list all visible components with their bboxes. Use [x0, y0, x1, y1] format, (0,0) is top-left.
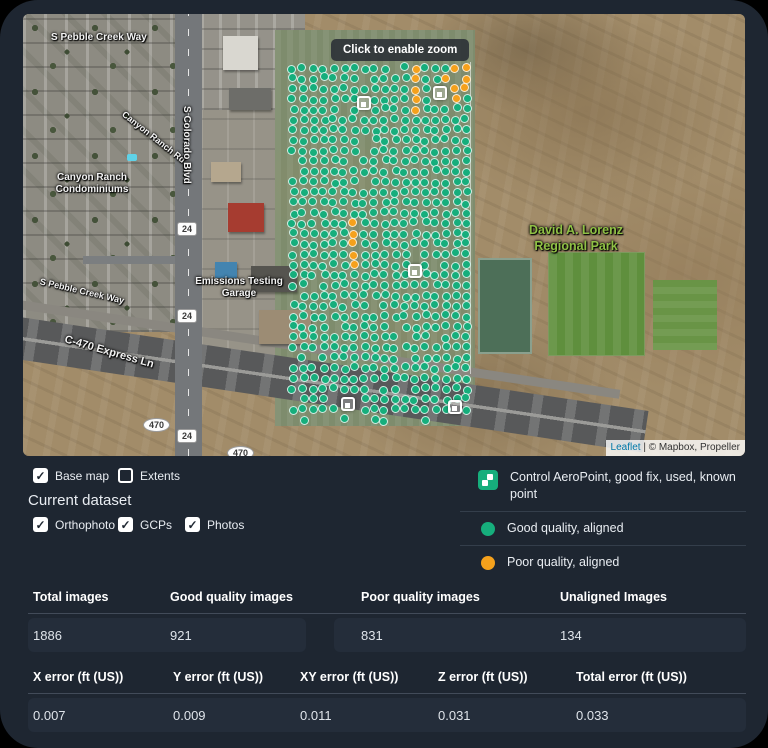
- good-photo-marker: [361, 352, 370, 361]
- good-photo-marker: [361, 251, 370, 260]
- good-photo-marker: [287, 219, 296, 228]
- good-photo-marker: [288, 177, 297, 186]
- good-photo-marker: [379, 145, 388, 154]
- good-photo-marker: [331, 281, 340, 290]
- good-photo-marker: [420, 405, 429, 414]
- good-photo-marker: [371, 106, 380, 115]
- good-photo-marker: [340, 146, 349, 155]
- good-photo-marker: [349, 333, 358, 342]
- good-photo-marker: [390, 230, 399, 239]
- good-photo-marker: [360, 385, 369, 394]
- good-photo-marker: [351, 147, 360, 156]
- good-photo-marker: [451, 271, 460, 280]
- good-photo-marker: [350, 311, 359, 320]
- good-photo-marker: [320, 333, 329, 342]
- good-photo-marker: [402, 250, 411, 259]
- good-photo-marker: [298, 147, 307, 156]
- good-photo-marker: [409, 396, 418, 405]
- good-photo-marker: [462, 125, 471, 134]
- good-photo-marker: [390, 300, 399, 309]
- good-photo-marker: [370, 219, 379, 228]
- good-photo-marker: [402, 293, 411, 302]
- column-header: XY error (ft (US)): [295, 670, 433, 684]
- good-photo-marker: [410, 375, 419, 384]
- good-photo-marker: [310, 373, 319, 382]
- good-photo-marker: [461, 393, 470, 402]
- good-photo-marker: [330, 333, 339, 342]
- good-photo-marker: [462, 269, 471, 278]
- good-photo-marker: [431, 312, 440, 321]
- good-photo-marker: [319, 85, 328, 94]
- good-photo-marker: [289, 136, 298, 145]
- good-photo-marker: [402, 146, 411, 155]
- good-photo-marker: [432, 405, 441, 414]
- good-photo-marker: [360, 168, 369, 177]
- good-photo-marker: [462, 353, 471, 362]
- map-attribution: Leaflet | © Mapbox, Propeller: [606, 440, 745, 456]
- good-photo-marker: [460, 114, 469, 123]
- good-photo-marker: [441, 188, 450, 197]
- good-photo-marker: [361, 364, 370, 373]
- good-photo-marker: [339, 250, 348, 259]
- legend-item-good: Good quality, aligned: [460, 512, 746, 546]
- orthophoto-checkbox[interactable]: ✓: [33, 517, 48, 532]
- good-photo-marker: [329, 145, 338, 154]
- stat-value: 921: [165, 628, 356, 643]
- good-photo-marker: [452, 342, 461, 351]
- good-photo-marker: [287, 146, 296, 155]
- good-photo-marker: [339, 178, 348, 187]
- good-photo-marker: [360, 301, 369, 310]
- good-photo-marker: [371, 177, 380, 186]
- good-photo-marker: [410, 344, 419, 353]
- good-photo-marker: [289, 270, 298, 279]
- good-photo-marker: [340, 135, 349, 144]
- good-photo-marker: [442, 342, 451, 351]
- good-photo-marker: [410, 198, 419, 207]
- good-photo-marker: [320, 156, 329, 165]
- good-photo-marker: [298, 197, 307, 206]
- good-photo-marker: [341, 94, 350, 103]
- good-photo-marker: [321, 219, 330, 228]
- good-photo-marker: [288, 282, 297, 291]
- photos-label: Photos: [207, 518, 244, 532]
- good-photo-marker: [339, 209, 348, 218]
- good-photo-marker: [451, 167, 460, 176]
- good-photo-marker: [287, 385, 296, 394]
- good-photo-marker: [431, 383, 440, 392]
- good-photo-marker: [451, 158, 460, 167]
- good-photo-marker: [441, 147, 450, 156]
- good-photo-marker: [300, 229, 309, 238]
- poor-photo-marker: [349, 251, 358, 260]
- good-photo-marker: [298, 302, 307, 311]
- good-photo-marker: [400, 187, 409, 196]
- good-photo-marker: [329, 229, 338, 238]
- good-photo-marker: [463, 322, 472, 331]
- good-photo-marker: [462, 292, 471, 301]
- good-photo-marker: [420, 250, 429, 259]
- good-photo-marker: [361, 239, 370, 248]
- good-photo-marker: [358, 199, 367, 208]
- good-photo-marker: [361, 272, 370, 281]
- good-photo-marker: [329, 383, 338, 392]
- good-photo-marker: [300, 250, 309, 259]
- good-photo-marker: [338, 303, 347, 312]
- good-photo-marker: [442, 301, 451, 310]
- good-photo-marker: [453, 322, 462, 331]
- good-photo-marker: [300, 167, 309, 176]
- good-photo-marker: [392, 250, 401, 259]
- good-photo-marker: [369, 64, 378, 73]
- good-photo-marker: [341, 365, 350, 374]
- good-photo-marker: [318, 353, 327, 362]
- good-photo-marker: [420, 137, 429, 146]
- good-photo-marker: [339, 197, 348, 206]
- good-photo-marker: [461, 200, 470, 209]
- checkmark-icon: ✓: [187, 519, 197, 531]
- good-photo-marker: [422, 198, 431, 207]
- good-photo-marker: [321, 375, 330, 384]
- good-photo-marker: [349, 343, 358, 352]
- good-photo-marker: [370, 333, 379, 342]
- map-canvas[interactable]: S Pebble Creek Way Canyon Ranch Rd Canyo…: [23, 14, 745, 456]
- good-photo-marker: [441, 280, 450, 289]
- image-stats-header: Total images Good quality images Poor qu…: [28, 590, 746, 614]
- good-photo-marker: [309, 405, 318, 414]
- poor-photo-marker: [412, 95, 421, 104]
- good-photo-marker: [461, 363, 470, 372]
- good-photo-marker: [370, 96, 379, 105]
- photos-checkbox[interactable]: ✓: [185, 517, 200, 532]
- good-photo-marker: [430, 126, 439, 135]
- good-photo-marker: [389, 344, 398, 353]
- good-photo-marker: [389, 207, 398, 216]
- good-photo-marker: [453, 218, 462, 227]
- good-photo-marker: [391, 262, 400, 271]
- good-photo-marker: [309, 302, 318, 311]
- good-photo-marker: [430, 300, 439, 309]
- good-photo-marker: [400, 85, 409, 94]
- good-photo-marker: [463, 146, 472, 155]
- good-photo-marker: [328, 114, 337, 123]
- good-photo-marker: [339, 352, 348, 361]
- good-photo-marker: [289, 116, 298, 125]
- good-photo-marker: [350, 63, 359, 72]
- good-photo-marker: [421, 383, 430, 392]
- good-photo-marker: [299, 331, 308, 340]
- good-photo-marker: [359, 189, 368, 198]
- good-photo-marker: [411, 363, 420, 372]
- good-photo-marker: [462, 313, 471, 322]
- good-photo-marker: [289, 406, 298, 415]
- good-photo-marker: [361, 126, 370, 135]
- good-photo-marker: [453, 374, 462, 383]
- good-photo-marker: [350, 176, 359, 185]
- poor-photo-marker: [462, 63, 471, 72]
- good-photo-marker: [420, 63, 429, 72]
- good-photo-marker: [370, 404, 379, 413]
- good-photo-marker: [369, 188, 378, 197]
- good-photo-marker: [348, 188, 357, 197]
- good-photo-marker: [309, 106, 318, 115]
- good-photo-marker: [412, 332, 421, 341]
- good-photo-marker: [297, 208, 306, 217]
- good-photo-marker: [307, 363, 316, 372]
- good-photo-marker: [349, 375, 358, 384]
- good-photo-marker: [330, 374, 339, 383]
- good-photo-marker: [289, 364, 298, 373]
- good-photo-marker: [288, 251, 297, 260]
- good-photo-marker: [402, 135, 411, 144]
- good-photo-marker: [401, 157, 410, 166]
- good-photo-marker: [380, 260, 389, 269]
- good-photo-marker: [462, 406, 471, 415]
- good-photo-marker: [330, 352, 339, 361]
- good-photo-marker: [452, 291, 461, 300]
- good-photo-marker: [340, 73, 349, 82]
- good-photo-marker: [433, 280, 442, 289]
- good-photo-marker: [399, 311, 408, 320]
- good-photo-marker: [329, 124, 338, 133]
- good-photo-marker: [420, 342, 429, 351]
- good-photo-marker: [430, 105, 439, 114]
- good-photo-marker: [400, 125, 409, 134]
- extents-checkbox[interactable]: [118, 468, 133, 483]
- good-photo-marker: [298, 156, 307, 165]
- good-photo-marker: [340, 228, 349, 237]
- image-stats-table: Total images Good quality images Poor qu…: [28, 590, 746, 652]
- good-photo-marker: [440, 270, 449, 279]
- stat-value: 0.009: [168, 708, 295, 723]
- good-photo-marker: [370, 75, 379, 84]
- good-photo-marker: [361, 260, 370, 269]
- good-photo-marker: [462, 301, 471, 310]
- good-photo-marker: [453, 124, 462, 133]
- good-photo-marker: [360, 85, 369, 94]
- good-photo-marker: [410, 238, 419, 247]
- good-photo-marker: [461, 177, 470, 186]
- good-photo-marker: [451, 208, 460, 217]
- good-photo-marker: [299, 279, 308, 288]
- good-photo-marker: [369, 280, 378, 289]
- good-photo-marker: [380, 207, 389, 216]
- good-photo-marker: [451, 248, 460, 257]
- good-photo-marker: [461, 249, 470, 258]
- good-photo-marker: [309, 177, 318, 186]
- good-photo-marker: [289, 332, 298, 341]
- good-photo-marker: [309, 385, 318, 394]
- good-photo-marker: [329, 250, 338, 259]
- good-photo-marker: [443, 364, 452, 373]
- good-photo-marker: [380, 281, 389, 290]
- good-photo-marker: [411, 187, 420, 196]
- good-photo-marker: [309, 96, 318, 105]
- column-header: X error (ft (US)): [28, 670, 168, 684]
- good-photo-marker: [412, 312, 421, 321]
- good-photo-marker: [349, 323, 358, 332]
- good-photo-marker: [320, 167, 329, 176]
- good-photo-marker: [309, 394, 318, 403]
- poor-photo-marker: [411, 86, 420, 95]
- good-photo-marker: [372, 291, 381, 300]
- good-photo-marker: [340, 375, 349, 384]
- good-photo-marker: [299, 137, 308, 146]
- good-photo-marker: [300, 260, 309, 269]
- good-photo-marker: [330, 342, 339, 351]
- good-photo-marker: [391, 404, 400, 413]
- good-photo-marker: [299, 94, 308, 103]
- good-photo-marker: [299, 84, 308, 93]
- good-photo-marker: [441, 219, 450, 228]
- good-photo-marker: [451, 362, 460, 371]
- leaflet-link[interactable]: Leaflet: [611, 442, 641, 453]
- good-photo-marker: [442, 210, 451, 219]
- orthophoto-label: Orthophoto: [55, 518, 115, 532]
- good-photo-marker: [452, 146, 461, 155]
- good-photo-marker: [411, 178, 420, 187]
- good-photo-marker: [369, 323, 378, 332]
- extents-label: Extents: [140, 469, 180, 483]
- stat-value: 0.033: [571, 708, 746, 723]
- image-stats-values: 1886 921 831 134: [28, 618, 746, 652]
- good-photo-marker: [392, 271, 401, 280]
- good-photo-marker: [411, 145, 420, 154]
- aeropoint-marker: [408, 264, 422, 278]
- aeropoint-marker: [357, 96, 371, 110]
- good-photo-marker: [431, 135, 440, 144]
- good-photo-marker: [370, 394, 379, 403]
- good-photo-marker: [432, 250, 441, 259]
- good-photo-marker: [369, 166, 378, 175]
- good-photo-marker: [379, 417, 388, 426]
- good-photo-marker: [452, 302, 461, 311]
- good-photo-marker: [442, 385, 451, 394]
- stat-value: 0.011: [295, 708, 433, 723]
- good-photo-marker: [359, 374, 368, 383]
- stat-value: 0.007: [28, 708, 168, 723]
- good-photo-marker: [341, 261, 350, 270]
- qa-report-panel: S Pebble Creek Way Canyon Ranch Rd Canyo…: [0, 0, 768, 748]
- good-photo-marker: [461, 137, 470, 146]
- good-photo-marker: [350, 86, 359, 95]
- good-photo-marker: [297, 220, 306, 229]
- current-dataset-title: Current dataset: [28, 492, 131, 509]
- good-photo-marker: [339, 157, 348, 166]
- good-photo-marker: [390, 84, 399, 93]
- good-photo-marker: [390, 364, 399, 373]
- good-photo-marker: [360, 116, 369, 125]
- good-photo-marker: [338, 168, 347, 177]
- good-photo-marker: [462, 168, 471, 177]
- good-photo-marker: [441, 310, 450, 319]
- good-photo-marker: [369, 313, 378, 322]
- good-photo-marker: [340, 279, 349, 288]
- good-photo-marker: [380, 311, 389, 320]
- good-photo-marker: [452, 281, 461, 290]
- good-photo-marker: [420, 146, 429, 155]
- gcps-checkbox[interactable]: ✓: [118, 517, 133, 532]
- good-photo-marker: [300, 292, 309, 301]
- good-photo-marker: [462, 281, 471, 290]
- good-photo-marker: [300, 394, 309, 403]
- aeropoint-marker: [433, 86, 447, 100]
- good-photo-marker: [307, 219, 316, 228]
- good-photo-marker: [341, 64, 350, 73]
- good-photo-marker: [310, 229, 319, 238]
- good-photo-marker: [379, 386, 388, 395]
- column-header: Unaligned Images: [555, 590, 746, 604]
- good-photo-marker: [308, 343, 317, 352]
- aeropoint-marker: [341, 397, 355, 411]
- good-photo-marker: [371, 84, 380, 93]
- good-photo-marker: [299, 311, 308, 320]
- column-header: Z error (ft (US)): [433, 670, 571, 684]
- good-photo-marker: [442, 375, 451, 384]
- good-photo-marker: [380, 322, 389, 331]
- poor-photo-marker: [411, 74, 420, 83]
- good-photo-marker: [442, 125, 451, 134]
- good-photo-marker: [308, 197, 317, 206]
- good-photo-marker: [392, 135, 401, 144]
- poor-photo-marker: [348, 238, 357, 247]
- good-photo-marker: [463, 104, 472, 113]
- good-photo-marker: [310, 116, 319, 125]
- base-map-checkbox[interactable]: ✓: [33, 468, 48, 483]
- good-photo-marker: [288, 84, 297, 93]
- good-photo-marker: [441, 321, 450, 330]
- good-photo-marker: [399, 230, 408, 239]
- good-photo-marker: [340, 344, 349, 353]
- good-photo-marker: [442, 353, 451, 362]
- good-photo-marker: [462, 156, 471, 165]
- good-photo-marker: [389, 355, 398, 364]
- good-photo-marker: [309, 156, 318, 165]
- good-photo-marker: [391, 395, 400, 404]
- good-photo-marker: [371, 344, 380, 353]
- good-photo-marker: [330, 64, 339, 73]
- good-photo-marker: [401, 116, 410, 125]
- good-photo-marker: [432, 354, 441, 363]
- good-photo-marker: [400, 280, 409, 289]
- good-photo-marker: [422, 84, 431, 93]
- good-photo-marker: [321, 270, 330, 279]
- good-photo-marker: [390, 95, 399, 104]
- good-photo-marker: [330, 85, 339, 94]
- good-photo-marker: [290, 105, 299, 114]
- good-photo-marker: [319, 302, 328, 311]
- aeropoint-marker: [448, 400, 462, 414]
- good-photo-marker: [359, 156, 368, 165]
- good-photo-marker: [288, 73, 297, 82]
- good-photo-marker: [309, 64, 318, 73]
- good-photo-marker: [420, 239, 429, 248]
- good-photo-marker: [289, 374, 298, 383]
- good-photo-marker: [372, 134, 381, 143]
- good-photo-marker: [328, 238, 337, 247]
- base-map-label: Base map: [55, 469, 109, 483]
- good-photo-marker: [320, 342, 329, 351]
- good-photo-marker: [369, 363, 378, 372]
- good-photo-marker: [340, 385, 349, 394]
- good-photo-marker: [399, 219, 408, 228]
- good-photo-marker: [300, 188, 309, 197]
- good-photo-marker: [350, 281, 359, 290]
- good-photo-marker: [412, 116, 421, 125]
- good-photo-marker: [431, 116, 440, 125]
- good-photo-marker: [319, 282, 328, 291]
- good-photo-marker: [462, 342, 471, 351]
